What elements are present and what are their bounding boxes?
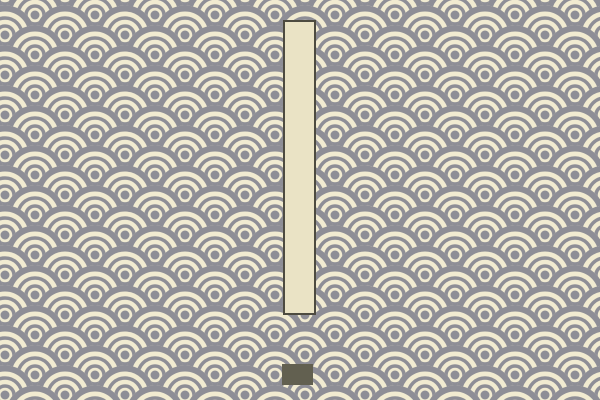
player-block[interactable] xyxy=(282,364,313,385)
game-scene[interactable] xyxy=(0,0,600,400)
pillar-obstacle xyxy=(283,20,316,315)
